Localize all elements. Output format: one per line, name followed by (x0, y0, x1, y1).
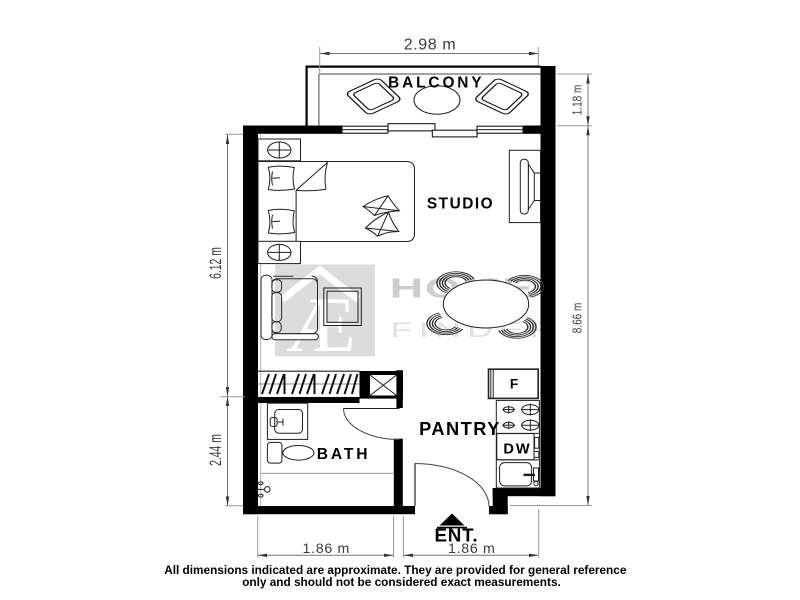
svg-text:BALCONY: BALCONY (388, 75, 484, 92)
svg-text:ENT.: ENT. (434, 525, 478, 546)
svg-text:F: F (510, 377, 518, 392)
svg-text:2.44 m: 2.44 m (207, 434, 225, 466)
svg-text:only and should not be conside: only and should not be considered exact … (242, 575, 561, 589)
svg-text:6.12 m: 6.12 m (207, 247, 225, 279)
svg-text:2.98 m: 2.98 m (404, 37, 457, 54)
svg-text:8.66 m: 8.66 m (572, 303, 585, 334)
svg-text:BATH: BATH (317, 446, 371, 463)
svg-text:1.18 m: 1.18 m (572, 85, 585, 116)
svg-text:DW: DW (503, 442, 531, 458)
svg-text:STUDIO: STUDIO (427, 196, 494, 213)
svg-text:Æ: Æ (286, 281, 355, 368)
svg-text:PANTRY: PANTRY (419, 419, 501, 439)
svg-text:1.86 m: 1.86 m (303, 541, 351, 557)
